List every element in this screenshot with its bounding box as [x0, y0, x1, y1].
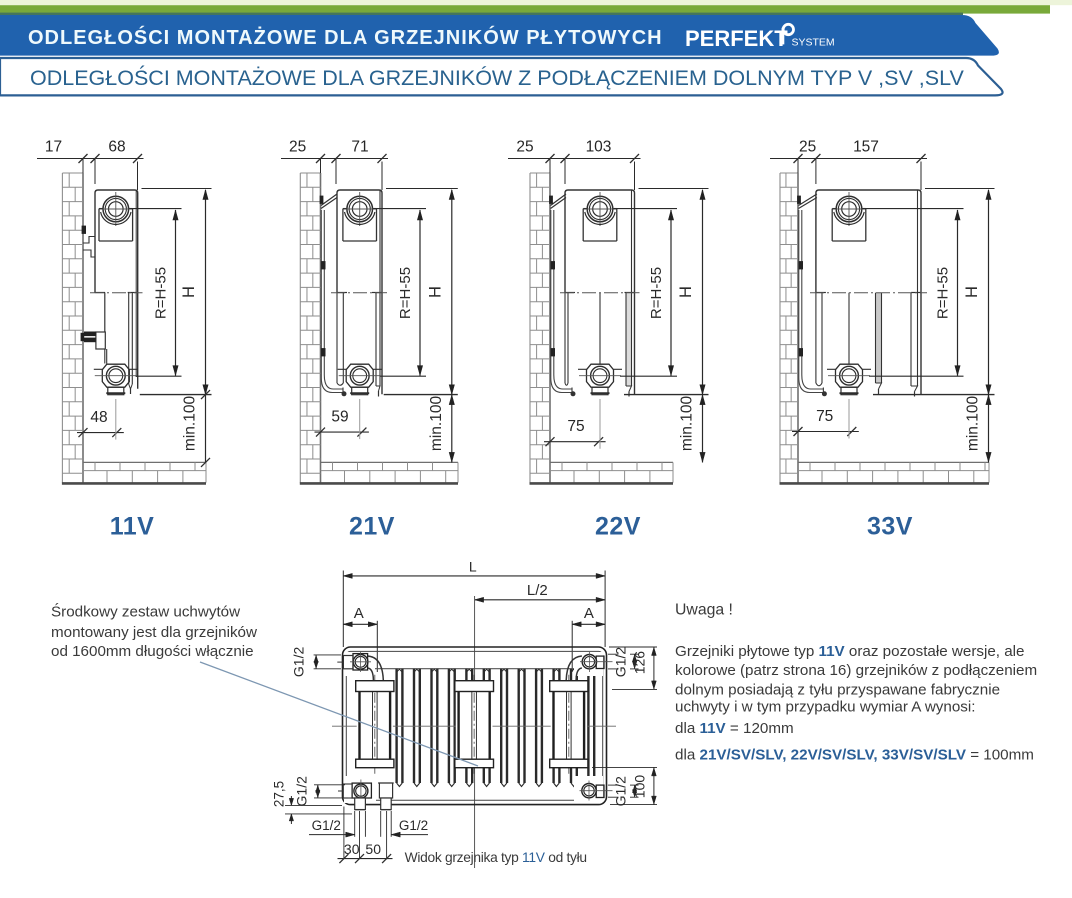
- svg-text:100: 100: [632, 775, 648, 799]
- svg-text:Grzejniki płytowe typ 11V oraz: Grzejniki płytowe typ 11V oraz pozostałe…: [675, 643, 1025, 660]
- svg-text:PERFEKT: PERFEKT: [685, 26, 788, 51]
- svg-text:uchwyty i w tym przypadku wymi: uchwyty i w tym przypadku wymiar A wynos…: [675, 699, 975, 716]
- svg-text:Uwaga !: Uwaga !: [675, 602, 733, 619]
- svg-text:A: A: [354, 605, 364, 622]
- svg-text:48: 48: [90, 409, 107, 426]
- svg-text:L/2: L/2: [527, 582, 548, 599]
- svg-text:75: 75: [816, 408, 833, 425]
- svg-text:od 1600mm długości włącznie: od 1600mm długości włącznie: [51, 643, 254, 660]
- svg-text:H: H: [426, 286, 444, 298]
- svg-text:min.100: min.100: [182, 396, 199, 452]
- svg-text:68: 68: [108, 139, 125, 156]
- svg-text:G1/2: G1/2: [293, 776, 309, 807]
- svg-text:25: 25: [289, 139, 306, 156]
- svg-text:H: H: [677, 286, 695, 298]
- svg-text:min.100: min.100: [428, 396, 445, 452]
- svg-text:A: A: [584, 605, 594, 622]
- svg-text:G1/2: G1/2: [312, 818, 341, 833]
- svg-text:R=H-55: R=H-55: [648, 267, 665, 319]
- svg-text:21V: 21V: [349, 513, 395, 541]
- svg-text:11V: 11V: [110, 513, 155, 541]
- svg-text:G1/2: G1/2: [399, 818, 428, 833]
- svg-text:Widok grzejnika typ 11V od tył: Widok grzejnika typ 11V od tyłu: [405, 850, 587, 865]
- svg-text:126: 126: [632, 651, 648, 675]
- svg-text:50: 50: [365, 841, 381, 857]
- svg-text:montowany jest dla grzejników: montowany jest dla grzejników: [51, 624, 257, 641]
- svg-text:dla 21V/SV/SLV, 22V/SV/SLV, 33: dla 21V/SV/SLV, 22V/SV/SLV, 33V/SV/SLV =…: [675, 747, 1034, 764]
- svg-text:G1/2: G1/2: [613, 776, 629, 807]
- svg-text:71: 71: [351, 139, 368, 156]
- svg-text:157: 157: [853, 139, 879, 156]
- svg-text:dolnym posiadają z tyłu przysp: dolnym posiadają z tyłu przyspawane fabr…: [675, 681, 1000, 698]
- svg-text:R=H-55: R=H-55: [935, 267, 952, 319]
- svg-text:min.100: min.100: [679, 396, 696, 452]
- svg-text:ODLEGŁOŚCI MONTAŻOWE DLA GRZEJ: ODLEGŁOŚCI MONTAŻOWE DLA GRZEJNIKÓW Z PO…: [30, 65, 964, 90]
- svg-text:SYSTEM: SYSTEM: [792, 37, 835, 49]
- svg-text:R=H-55: R=H-55: [397, 267, 414, 319]
- svg-text:H: H: [963, 286, 981, 298]
- svg-text:kolorowe (patrz strona 16) grz: kolorowe (patrz strona 16) grzejników z …: [675, 662, 1037, 679]
- svg-text:L: L: [469, 559, 477, 575]
- svg-text:103: 103: [586, 139, 612, 156]
- svg-text:G1/2: G1/2: [290, 647, 306, 678]
- svg-text:59: 59: [331, 409, 348, 426]
- svg-text:22V: 22V: [595, 513, 641, 541]
- svg-text:min.100: min.100: [965, 396, 982, 452]
- svg-text:33V: 33V: [867, 513, 913, 541]
- svg-text:17: 17: [45, 139, 62, 156]
- svg-text:H: H: [180, 286, 198, 298]
- svg-text:dla 11V = 120mm: dla 11V = 120mm: [675, 720, 794, 737]
- svg-text:25: 25: [516, 139, 533, 156]
- svg-text:30: 30: [344, 841, 360, 857]
- svg-text:Środkowy zestaw uchwytów: Środkowy zestaw uchwytów: [51, 603, 240, 621]
- svg-text:75: 75: [567, 418, 584, 435]
- svg-text:G1/2: G1/2: [613, 647, 629, 678]
- svg-text:ODLEGŁOŚCI MONTAŻOWE DLA GRZEJ: ODLEGŁOŚCI MONTAŻOWE DLA GRZEJNIKÓW PŁYT…: [28, 25, 663, 49]
- svg-text:27,5: 27,5: [272, 781, 287, 807]
- svg-text:25: 25: [799, 139, 816, 156]
- svg-text:R=H-55: R=H-55: [153, 267, 170, 319]
